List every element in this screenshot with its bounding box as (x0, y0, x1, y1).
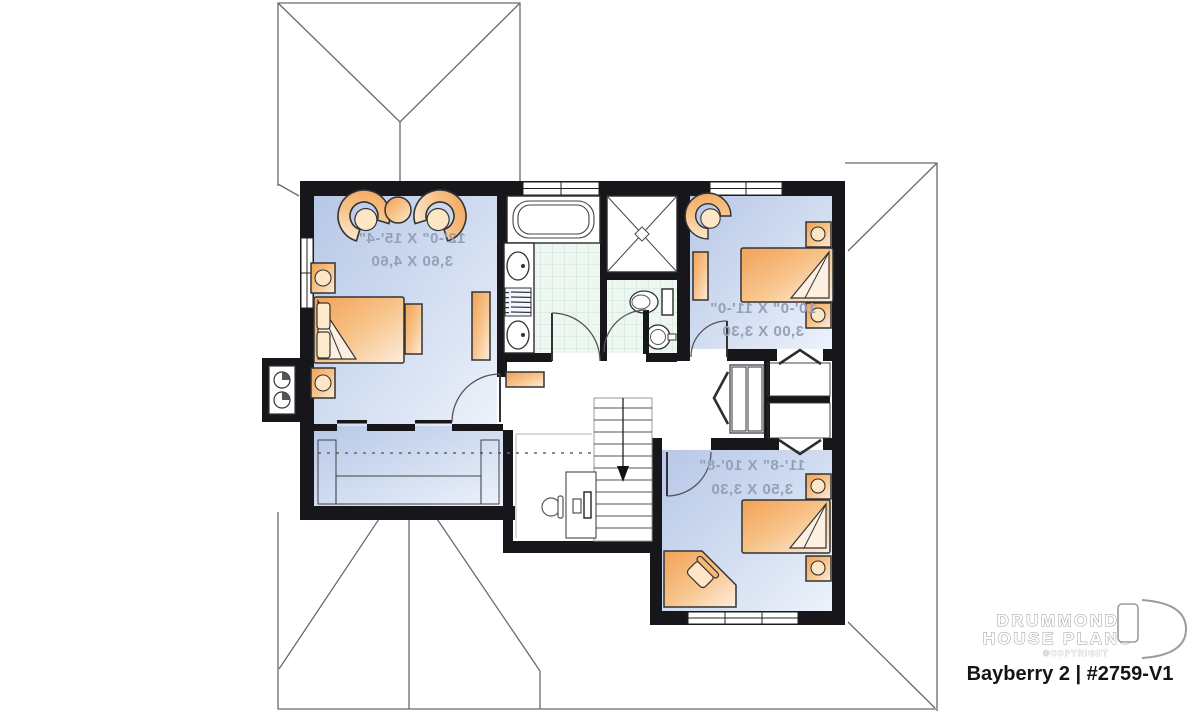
bedroom-3-dims-metric: 3,50 X 3,30 (711, 481, 793, 498)
window-bedroom3-bottom (688, 612, 798, 624)
window-bathroom-top (523, 182, 599, 195)
bed-master (314, 297, 404, 363)
nightstand (806, 222, 831, 247)
bedroom-2-dims-metric: 3,00 X 3,30 (722, 323, 804, 340)
nightstand (806, 474, 831, 499)
hall-linen-closet (714, 365, 764, 433)
vanity-double-sink (504, 243, 534, 353)
bedroom-3-dims-imperial: 11'-8" X 10'-8" (699, 457, 805, 474)
chimney (262, 358, 302, 422)
dresser (693, 252, 708, 300)
bifold-chevron-left-icon (714, 372, 728, 424)
nightstand (311, 368, 335, 398)
computer-desk (542, 472, 596, 538)
bed-bedroom-3 (742, 500, 830, 553)
window-bedroom2-top (710, 182, 782, 195)
bedroom-2-dims-imperial: 10'-0" X 11'-0" (710, 300, 816, 317)
plan-title: Bayberry 2 | #2759-V1 (967, 663, 1174, 685)
dresser (405, 304, 422, 354)
bathtub (507, 196, 600, 243)
walkin-closet-floor (314, 426, 503, 506)
shower (607, 196, 677, 272)
brand-copyright: ©COPYRIGHT (1043, 649, 1108, 658)
side-table (385, 197, 411, 223)
master-bedroom-dims-metric: 3,60 X 4,60 (371, 253, 453, 270)
floor-plan-page: 12'-0" X 15'-4" 3,60 X 4,60 10'-0" X 11'… (0, 0, 1200, 711)
branding: DRUMMOND HOUSE PLANS ©COPYRIGHT Bayberry… (967, 600, 1186, 685)
bedroom-2-closet (768, 350, 830, 396)
floor-plan-svg: 12'-0" X 15'-4" 3,60 X 4,60 10'-0" X 11'… (0, 0, 1200, 711)
bed-bedroom-2 (741, 248, 833, 302)
drummond-d-logo-icon (1118, 600, 1186, 658)
dresser (472, 292, 490, 360)
bifold-chevron-up-icon (779, 350, 821, 364)
stairs (594, 398, 652, 541)
linen-tower (505, 288, 531, 316)
nightstand (311, 263, 335, 293)
nightstand (806, 556, 831, 581)
brand-name-line2: HOUSE PLANS (983, 629, 1133, 648)
brand-name-line1: DRUMMOND (997, 611, 1120, 630)
master-bedroom-dims-imperial: 12'-0" X 15'-4" (358, 230, 465, 247)
hall-console (506, 372, 544, 387)
